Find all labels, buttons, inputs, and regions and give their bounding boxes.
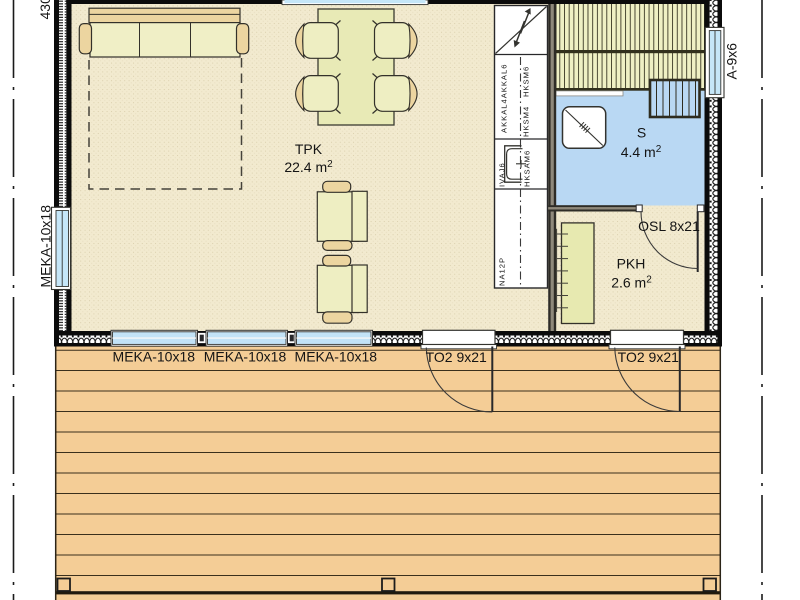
- svg-text:4.4 m2: 4.4 m2: [621, 144, 662, 160]
- svg-text:IVAJ6: IVAJ6: [498, 162, 507, 187]
- svg-text:TO2 9x21: TO2 9x21: [618, 349, 679, 365]
- svg-text:HKSM4: HKSM4: [522, 106, 531, 137]
- svg-text:TPK: TPK: [295, 141, 323, 157]
- svg-text:HKSM6: HKSM6: [522, 66, 531, 97]
- svg-text:MEKA-10x18: MEKA-10x18: [38, 205, 54, 288]
- svg-text:MEKA-10x18: MEKA-10x18: [295, 348, 378, 364]
- svg-text:AKKAL4AKKAL6: AKKAL4AKKAL6: [500, 64, 509, 133]
- svg-text:PKH: PKH: [617, 256, 646, 272]
- svg-text:HKSAM6: HKSAM6: [523, 150, 532, 187]
- svg-text:2.6 m2: 2.6 m2: [611, 275, 652, 291]
- svg-text:MEKA-10x18: MEKA-10x18: [113, 348, 196, 364]
- svg-text:TO2 9x21: TO2 9x21: [426, 349, 487, 365]
- svg-text:MEKA-10x18: MEKA-10x18: [204, 348, 287, 364]
- svg-text:4300: 4300: [37, 0, 53, 20]
- svg-text:22.4 m2: 22.4 m2: [284, 159, 333, 175]
- svg-text:A-9x6: A-9x6: [724, 43, 740, 80]
- svg-text:NA12P: NA12P: [498, 257, 507, 286]
- svg-text:OSL 8x21: OSL 8x21: [638, 218, 700, 234]
- svg-text:S: S: [637, 125, 646, 141]
